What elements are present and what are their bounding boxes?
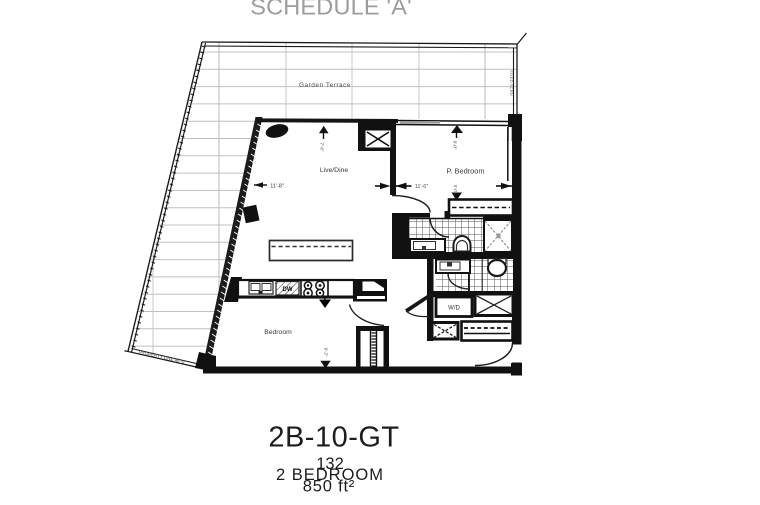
svg-text:P. Bedroom: P. Bedroom	[446, 167, 484, 176]
svg-text:PROPERTY LINE 46'-0": PROPERTY LINE 46'-0"	[138, 349, 187, 365]
svg-text:2B-10-GT: 2B-10-GT	[268, 422, 399, 454]
svg-text:DW: DW	[283, 287, 293, 293]
svg-text:Live/Dine: Live/Dine	[320, 167, 349, 174]
svg-text:11'-8": 11'-8"	[270, 184, 284, 190]
svg-text:850 ft²: 850 ft²	[303, 478, 355, 496]
svg-text:FIXED SCRN: FIXED SCRN	[509, 70, 514, 95]
svg-text:SCHEDULE 'A': SCHEDULE 'A'	[250, 0, 412, 20]
svg-text:Garden Terrace: Garden Terrace	[299, 82, 351, 89]
svg-text:5'-0": 5'-0"	[453, 185, 458, 194]
svg-text:7'-6": 7'-6"	[320, 143, 325, 152]
svg-text:W/D: W/D	[448, 306, 460, 312]
svg-text:11'-6": 11'-6"	[415, 184, 429, 190]
svg-text:9'-2": 9'-2"	[324, 348, 329, 357]
svg-text:Bedroom: Bedroom	[264, 329, 292, 336]
svg-text:9'-0": 9'-0"	[453, 141, 458, 150]
